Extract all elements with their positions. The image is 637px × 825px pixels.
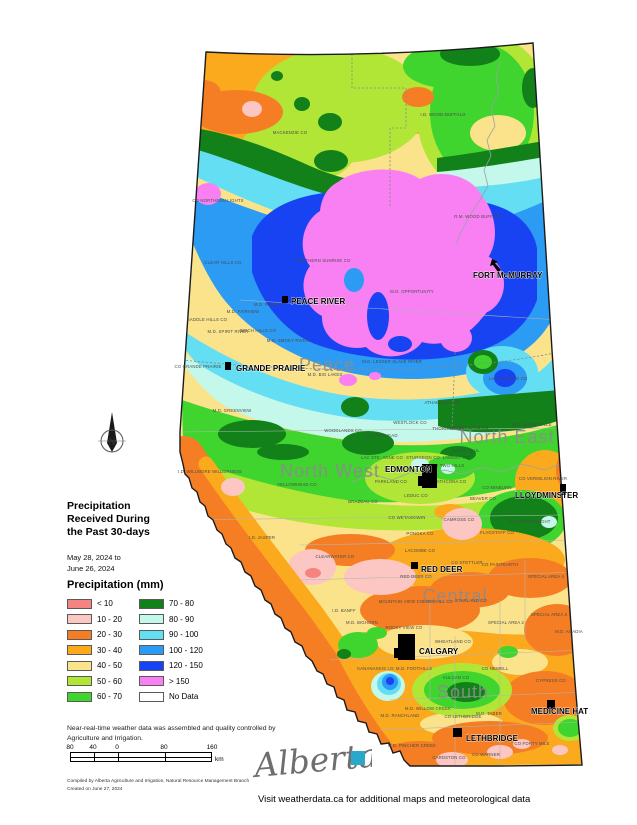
legend-label: 50 - 60 bbox=[97, 677, 122, 686]
data-quality-note-line: Agriculture and Irrigation. bbox=[67, 734, 276, 744]
county-label: BRAZEAU CO bbox=[348, 499, 378, 504]
precipitation-map-page: PeaceNorth WestNorth EastCentralSouth I.… bbox=[0, 0, 637, 825]
legend-item: 30 - 40 bbox=[67, 645, 139, 655]
legend-swatch bbox=[139, 614, 164, 624]
county-label: M.D. WILLOW CREEK bbox=[405, 706, 451, 711]
county-label: M.D. PEACE bbox=[254, 302, 280, 307]
legend-item: 70 - 80 bbox=[139, 599, 211, 609]
county-label: SPECIAL AREA 3 bbox=[531, 612, 568, 617]
legend-item: 10 - 20 bbox=[67, 614, 139, 624]
county-label: THORHILD CO bbox=[432, 426, 464, 431]
map-title-line: Precipitation bbox=[67, 500, 150, 513]
legend-swatch bbox=[67, 645, 92, 655]
legend-label: 20 - 30 bbox=[97, 630, 122, 639]
legend-label: 120 - 150 bbox=[169, 661, 203, 670]
scale-tick: 40 bbox=[89, 744, 96, 751]
county-label: MOUNTAIN VIEW CO bbox=[379, 599, 424, 604]
county-label: M.D. GREENVIEW bbox=[213, 408, 252, 413]
legend-swatch bbox=[139, 645, 164, 655]
city-label: PEACE RIVER bbox=[291, 297, 345, 306]
legend-label: 10 - 20 bbox=[97, 615, 122, 624]
region-label: North East bbox=[459, 427, 554, 447]
city-marker bbox=[398, 634, 415, 660]
city-marker bbox=[282, 296, 288, 303]
city-label: GRANDE PRAIRIE bbox=[236, 364, 306, 373]
legend-swatch bbox=[139, 599, 164, 609]
map-title: Precipitation Received During the Past 3… bbox=[67, 500, 150, 539]
county-label: SPECIAL AREA 4 bbox=[528, 574, 565, 579]
county-label: CARDSTON CO bbox=[432, 755, 466, 760]
county-label: SPECIAL AREA 2 bbox=[488, 620, 525, 625]
city-label: LLOYDMINSTER bbox=[515, 491, 578, 500]
county-label: BIRCH HILLS CO bbox=[240, 328, 277, 333]
county-label: WOODLANDS CO bbox=[324, 428, 362, 433]
legend-swatch bbox=[139, 676, 164, 686]
county-label: I.D. WILLMORE WILDERNESS bbox=[178, 469, 242, 474]
county-label: CO NORTHERN LIGHTS bbox=[192, 198, 243, 203]
legend-label: > 150 bbox=[169, 677, 189, 686]
county-label: RED DEER CO bbox=[400, 574, 432, 579]
county-label: ATHABASCA CO bbox=[425, 400, 460, 405]
date-range-line: June 26, 2024 bbox=[67, 564, 121, 575]
county-label: CO ST. PAUL bbox=[452, 448, 480, 453]
county-label: ROCKY VIEW CO bbox=[386, 625, 423, 630]
legend-swatch bbox=[139, 692, 164, 702]
legend-label: 30 - 40 bbox=[97, 646, 122, 655]
county-label: CAMROSE CO bbox=[444, 517, 475, 522]
city-marker bbox=[225, 362, 231, 370]
alberta-logo: Alberta bbox=[252, 732, 372, 786]
legend-item: < 10 bbox=[67, 599, 139, 609]
legend-item: 80 - 90 bbox=[139, 614, 211, 624]
compiled-note: Compiled by Alberta Agriculture and Irri… bbox=[67, 778, 249, 793]
data-quality-note: Near-real-time weather data was assemble… bbox=[67, 724, 276, 743]
map-title-line: Received During bbox=[67, 513, 150, 526]
county-label: CLEAR HILLS CO bbox=[204, 260, 242, 265]
county-label: MACKENZIE CO bbox=[273, 130, 308, 135]
legend-item: 100 - 120 bbox=[139, 645, 211, 655]
scale-unit: km bbox=[215, 756, 224, 763]
legend-item: 120 - 150 bbox=[139, 661, 211, 671]
county-label: CO GRANDE PRAIRIE bbox=[175, 364, 222, 369]
county-label: NORTHERN SUNRISE CO bbox=[295, 258, 351, 263]
scale-tick: 80 bbox=[160, 744, 167, 751]
county-label: CO MINBURN bbox=[482, 485, 511, 490]
north-arrow-label: N bbox=[108, 437, 115, 448]
city-marker bbox=[453, 728, 462, 737]
county-label: M.D. WAINWRIGHT bbox=[510, 519, 551, 524]
legend-item: > 150 bbox=[139, 676, 211, 686]
county-label: M.D. FOOTHILLS bbox=[396, 666, 432, 671]
county-label: I.D. JASPER bbox=[249, 535, 275, 540]
county-label: M.D. FAIRVIEW bbox=[227, 309, 260, 314]
county-label: M.D. SMOKY RIVER bbox=[267, 338, 309, 343]
county-label: CO LETHBRIDGE bbox=[444, 714, 481, 719]
city-label: MEDICINE HAT bbox=[531, 707, 588, 716]
precipitation-legend: Precipitation (mm) < 1010 - 2020 - 3030 … bbox=[67, 579, 211, 705]
city-label: LETHBRIDGE bbox=[466, 734, 519, 743]
legend-swatch bbox=[67, 614, 92, 624]
county-label: M.D. ACADIA bbox=[555, 629, 583, 634]
legend-swatch bbox=[67, 630, 92, 640]
legend-label: < 10 bbox=[97, 599, 113, 608]
legend-swatch bbox=[67, 661, 92, 671]
county-label: LACOMBE CO bbox=[405, 548, 436, 553]
county-label: M.D. BIG LAKES bbox=[308, 372, 343, 377]
city-label: FORT McMURRAY bbox=[473, 271, 543, 280]
county-label: M.D. BIGHORN bbox=[346, 620, 378, 625]
legend-swatch bbox=[67, 676, 92, 686]
county-label: CYPRESS CO bbox=[536, 678, 566, 683]
county-label: WHEATLAND CO bbox=[435, 639, 472, 644]
scale-tick: 80 bbox=[66, 744, 73, 751]
legend-swatch bbox=[67, 599, 92, 609]
county-label: YELLOWHEAD CO bbox=[277, 482, 317, 487]
north-arrow-icon: N bbox=[98, 412, 126, 452]
region-label: North West bbox=[280, 461, 380, 481]
county-label: LAC LA BICHE CO bbox=[489, 376, 528, 381]
legend-swatch bbox=[67, 692, 92, 702]
county-label: LAMONT CO bbox=[443, 455, 470, 460]
city-marker bbox=[418, 476, 424, 486]
map-color-fields bbox=[170, 35, 595, 775]
county-label: CO WETASKIWIN bbox=[389, 515, 426, 520]
county-label: STURGEON CO bbox=[406, 455, 440, 460]
legend-header: Precipitation (mm) bbox=[67, 579, 211, 591]
county-label: R.M. WOOD BUFFALO bbox=[454, 214, 502, 219]
legend-item: 60 - 70 bbox=[67, 692, 139, 702]
county-label: CO BARRHEAD bbox=[364, 433, 397, 438]
alberta-logo-mark bbox=[351, 751, 365, 765]
county-label: CO VERMILION RIVER bbox=[519, 476, 567, 481]
legend-label: 90 - 100 bbox=[169, 630, 198, 639]
legend-item: 40 - 50 bbox=[67, 661, 139, 671]
county-label: SADDLE HILLS CO bbox=[187, 317, 228, 322]
scale-bar-graphic bbox=[70, 752, 212, 762]
legend-item: 20 - 30 bbox=[67, 630, 139, 640]
county-label: M.D. BONNYVILLE bbox=[512, 422, 552, 427]
county-label: LAC STE. ANNE CO bbox=[361, 455, 404, 460]
county-label: CO NEWELL bbox=[482, 666, 509, 671]
legend-grid: < 1010 - 2020 - 3030 - 4040 - 5050 - 606… bbox=[67, 596, 211, 705]
county-label: CO PAINTEARTH bbox=[482, 562, 518, 567]
county-label: M.D. OPPORTUNITY bbox=[390, 289, 434, 294]
county-label: KNEEHILL CO bbox=[423, 599, 453, 604]
county-label: I.D. BANFF bbox=[332, 608, 356, 613]
legend-item: 50 - 60 bbox=[67, 676, 139, 686]
data-quality-note-line: Near-real-time weather data was assemble… bbox=[67, 724, 276, 734]
city-label: CALGARY bbox=[419, 647, 459, 656]
county-label: CLEARWATER CO bbox=[316, 554, 355, 559]
compiled-note-line: Compiled by Alberta Agriculture and Irri… bbox=[67, 778, 249, 786]
region-label: South bbox=[437, 682, 489, 702]
county-label: BEAVER CO bbox=[470, 496, 497, 501]
legend-swatch bbox=[139, 630, 164, 640]
date-range: May 28, 2024 to June 26, 2024 bbox=[67, 553, 121, 574]
county-label: PONOKA CO bbox=[406, 531, 434, 536]
county-label: FLAGSTAFF CO bbox=[480, 530, 514, 535]
county-label: PARKLAND CO bbox=[375, 479, 408, 484]
county-label: I.D. WOOD-BUFFALO bbox=[420, 112, 466, 117]
legend-item: 90 - 100 bbox=[139, 630, 211, 640]
scale-tick: 160 bbox=[207, 744, 218, 751]
date-range-line: May 28, 2024 to bbox=[67, 553, 121, 564]
legend-item: No Data bbox=[139, 692, 211, 702]
city-label: EDMONTON bbox=[385, 465, 432, 474]
legend-swatch bbox=[139, 661, 164, 671]
compiled-note-line: Created on June 27, 2024 bbox=[67, 786, 249, 794]
legend-label: 80 - 90 bbox=[169, 615, 194, 624]
legend-label: No Data bbox=[169, 692, 198, 701]
scale-tick-labels: 8040080160 bbox=[67, 744, 237, 752]
city-marker bbox=[394, 648, 400, 658]
county-label: LEDUC CO bbox=[404, 493, 428, 498]
county-label: WESTLOCK CO bbox=[393, 420, 427, 425]
legend-label: 100 - 120 bbox=[169, 646, 203, 655]
county-label: CO WARNER bbox=[472, 752, 500, 757]
county-label: STARLAND CO bbox=[455, 598, 487, 603]
county-label: KANANASKIS I.D. bbox=[357, 666, 395, 671]
legend-label: 70 - 80 bbox=[169, 599, 194, 608]
city-marker bbox=[411, 562, 418, 569]
map-title-line: the Past 30-days bbox=[67, 526, 150, 539]
scale-tick: 0 bbox=[115, 744, 119, 751]
visit-note: Visit weatherdata.ca for additional maps… bbox=[258, 794, 530, 805]
legend-label: 60 - 70 bbox=[97, 692, 122, 701]
county-label: M.D. RANCHLAND bbox=[380, 713, 419, 718]
county-label: M.D. LESSER SLAVE RIVER bbox=[362, 359, 422, 364]
county-label: CO FORTY MILE bbox=[514, 741, 549, 746]
legend-label: 40 - 50 bbox=[97, 661, 122, 670]
county-label: VULCAN CO bbox=[443, 675, 470, 680]
city-label: RED DEER bbox=[421, 565, 463, 574]
map-scale-bar: 8040080160 km bbox=[67, 744, 237, 770]
county-label: M.D. PINCHER CREEK bbox=[388, 743, 436, 748]
